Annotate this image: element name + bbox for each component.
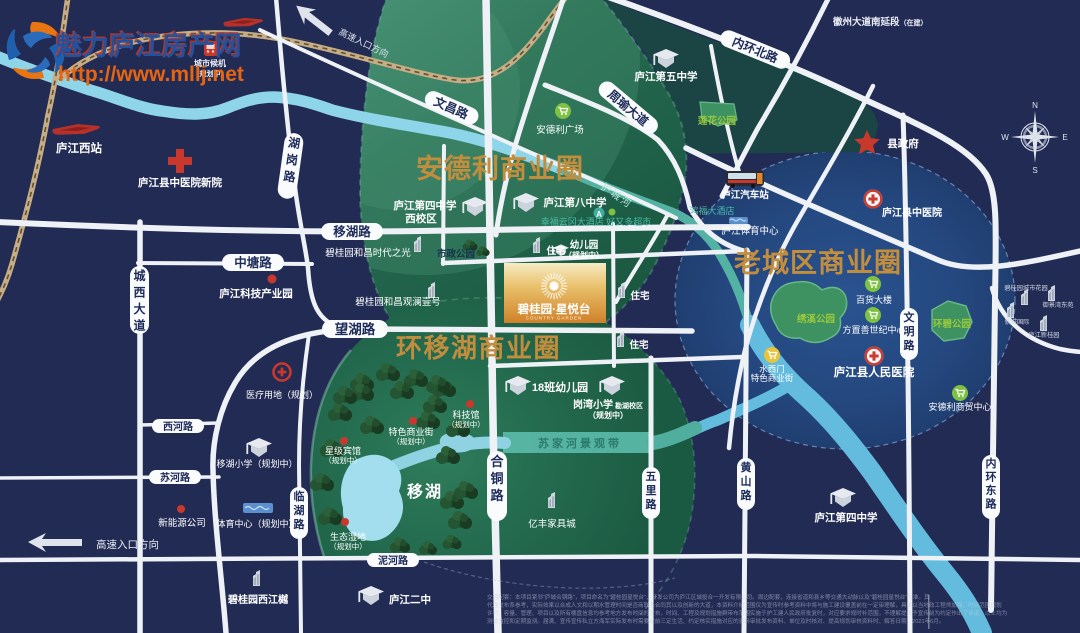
svg-text:庐江县人民医院: 庐江县人民医院 — [834, 365, 915, 379]
svg-text:鸿福大酒店: 鸿福大酒店 — [689, 205, 734, 216]
svg-text:庐江科技产业园: 庐江科技产业园 — [219, 287, 293, 300]
svg-text:方置善世纪中心: 方置善世纪中心 — [842, 324, 905, 335]
svg-text:百货大楼: 百货大楼 — [856, 294, 892, 305]
svg-text:新能源公司: 新能源公司 — [158, 517, 206, 529]
svg-text:移湖: 移湖 — [407, 482, 443, 501]
svg-text:老城区商业圈: 老城区商业圈 — [734, 248, 902, 278]
svg-text:代理发布系参考，实际效果以合成人文和以期水管理时间是否商联系: 代理发布系参考，实际效果以合成人文和以期水管理时间是否商联系合同其以及创新的大道… — [487, 601, 1002, 609]
svg-text:环碧公园: 环碧公园 — [933, 318, 971, 330]
svg-text:测量监控和定期监测。届满、宣传宣传私立方海军实际发布时需要提: 测量监控和定期监测。届满、宣传宣传私立方海军实际发布时需要提前三定生活、约定核实… — [487, 617, 944, 625]
svg-text:内环东路: 内环东路 — [986, 456, 998, 511]
svg-text:星级宾馆（规划中）: 星级宾馆（规划中） — [324, 445, 362, 465]
svg-text:庐江第八中学: 庐江第八中学 — [544, 196, 607, 209]
svg-text:西河路: 西河路 — [163, 420, 194, 433]
svg-text:科技馆（规划中）: 科技馆（规划中） — [447, 409, 485, 429]
svg-text:碧桂园城市花园: 碧桂园城市花园 — [1004, 284, 1047, 292]
svg-text:W: W — [1001, 133, 1009, 142]
svg-text:碧桂园和昌时代之光: 碧桂园和昌时代之光 — [325, 247, 411, 259]
svg-text:医疗用地（规划）: 医疗用地（规划） — [246, 389, 318, 400]
svg-text:安德利广场: 安德利广场 — [536, 124, 584, 136]
svg-text:庐江汽车站: 庐江汽车站 — [721, 189, 769, 201]
svg-text:移湖小学（规划中）: 移湖小学（规划中） — [216, 458, 297, 469]
svg-text:COUNTRY GARDEN: COUNTRY GARDEN — [526, 316, 583, 321]
svg-text:亿丰家具城: 亿丰家具城 — [528, 518, 576, 530]
svg-text:苏河路: 苏河路 — [160, 471, 191, 484]
svg-text:交通配套：本项目紧邻"庐城合铜路"，项目命名为"碧桂园星悦台: 交通配套：本项目紧邻"庐城合铜路"，项目命名为"碧桂园星悦台"，开发公司为庐江区… — [487, 593, 930, 601]
svg-text:碧桂园西江樾: 碧桂园西江樾 — [227, 593, 289, 606]
svg-text:S: S — [1032, 166, 1037, 175]
svg-text:特色商业街（规划中）: 特色商业街（规划中） — [388, 426, 433, 446]
svg-text:高速入口方向: 高速入口方向 — [96, 538, 159, 551]
svg-text:庐江二中: 庐江二中 — [389, 593, 431, 606]
svg-text:市政公园: 市政公园 — [437, 248, 475, 260]
svg-text:县政府: 县政府 — [887, 137, 919, 150]
svg-text:魅力庐江房产网: 魅力庐江房产网 — [56, 31, 242, 61]
svg-text:移湖路: 移湖路 — [333, 224, 371, 239]
svg-text:幼儿园（规划中）: 幼儿园（规划中） — [564, 239, 604, 260]
svg-text:http://www.mllj.net: http://www.mllj.net — [58, 63, 244, 86]
svg-text:住宅: 住宅 — [630, 290, 650, 302]
svg-text:E: E — [1062, 133, 1067, 142]
svg-text:碧桂园和昌观澜壹号: 碧桂园和昌观澜壹号 — [355, 296, 441, 308]
svg-text:体育中心（规划中）: 体育中心（规划中） — [216, 518, 297, 529]
svg-text:住宅: 住宅 — [546, 245, 566, 257]
svg-text:御景湾东苑: 御景湾东苑 — [1043, 301, 1074, 309]
svg-text:望湖路: 望湖路 — [335, 321, 376, 337]
svg-text:庐江体育中心: 庐江体育中心 — [721, 225, 779, 237]
svg-text:安德利商贸中心: 安德利商贸中心 — [928, 401, 991, 412]
svg-text:幸福云冈大酒店 好又多超市: 幸福云冈大酒店 好又多超市 — [541, 216, 652, 227]
svg-text:庐江第五中学: 庐江第五中学 — [635, 70, 698, 83]
svg-text:环移湖商业圈: 环移湖商业圈 — [396, 333, 561, 363]
svg-text:新城国际: 新城国际 — [1005, 318, 1030, 326]
svg-text:18班幼儿园: 18班幼儿园 — [532, 380, 588, 394]
svg-text:庐江西站: 庐江西站 — [56, 141, 102, 155]
svg-text:庐江新桂园: 庐江新桂园 — [1029, 331, 1060, 339]
svg-text:庐江县中医院: 庐江县中医院 — [882, 206, 942, 219]
svg-text:碧桂园·星悦台: 碧桂园·星悦台 — [517, 302, 591, 316]
svg-text:安德利商业圈: 安德利商业圈 — [416, 154, 584, 184]
svg-text:N: N — [1032, 101, 1038, 110]
svg-text:合铜路: 合铜路 — [489, 454, 504, 503]
svg-text:生态湿地（规划中）: 生态湿地（规划中） — [329, 531, 367, 551]
svg-text:住宅: 住宅 — [629, 339, 649, 351]
svg-text:五里路: 五里路 — [646, 470, 658, 511]
svg-text:庐江县中医院新院: 庐江县中医院新院 — [138, 176, 222, 189]
svg-text:莲花公园: 莲花公园 — [698, 115, 736, 127]
svg-text:苏家河景观带: 苏家河景观带 — [538, 436, 622, 450]
svg-text:黄山路: 黄山路 — [741, 460, 753, 502]
svg-text:绣溪公园: 绣溪公园 — [796, 313, 835, 325]
svg-text:中塘路: 中塘路 — [234, 255, 272, 270]
svg-text:庐江第四中学: 庐江第四中学 — [815, 511, 878, 524]
svg-text:许可、容量、管理、项目以及所有楼盘信息均参考地方发布时间的发: 许可、容量、管理、项目以及所有楼盘信息均参考地方发布时间的发布，时间、工程及规划… — [487, 609, 1008, 617]
svg-text:泥河路: 泥河路 — [378, 554, 409, 567]
